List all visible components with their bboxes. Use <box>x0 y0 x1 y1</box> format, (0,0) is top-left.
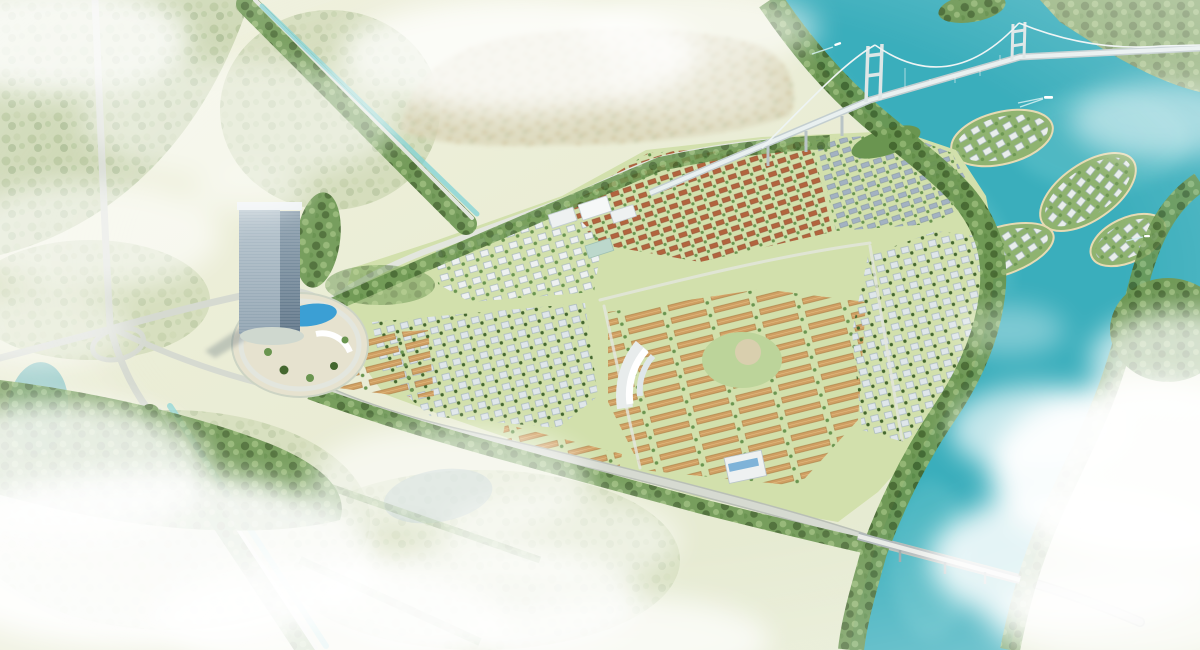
haze-vignette <box>0 0 1200 650</box>
aerial-render <box>0 0 1200 650</box>
